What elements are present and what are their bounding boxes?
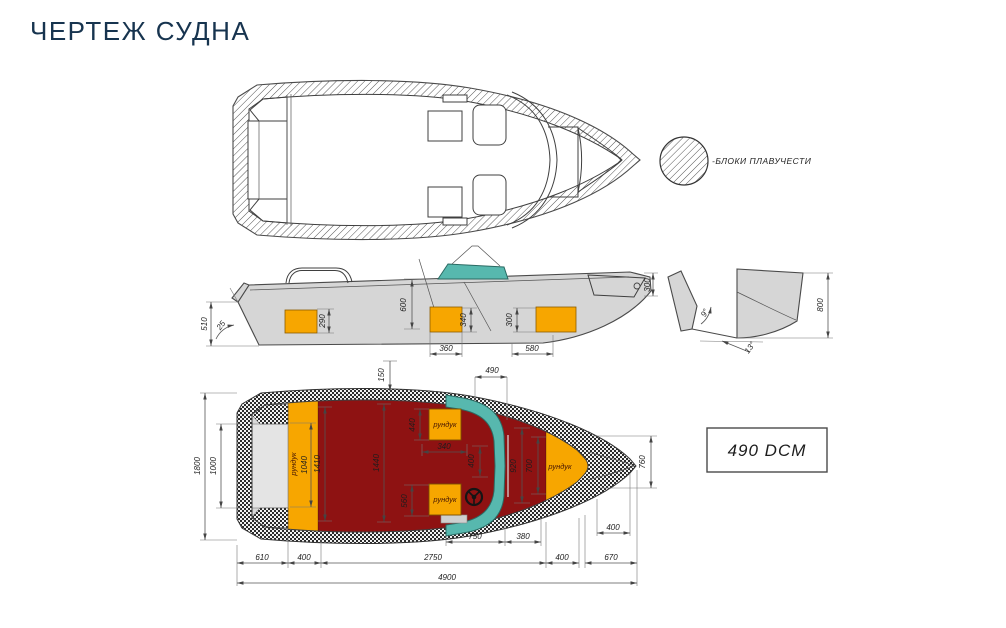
dim-locker-length: 400 [297, 553, 311, 562]
dim-cockpit-depth: 600 [399, 298, 408, 312]
dim-cockpit-w1: 1410 [313, 455, 322, 473]
dim-rubrail: 150 [377, 368, 386, 382]
dim-beam: 1800 [193, 457, 202, 475]
side-locker-2 [430, 307, 462, 332]
blueprint-page: ЧЕРТЕЖ СУДНА [0, 0, 1006, 628]
seat-box-port [428, 111, 462, 141]
dim-section-height: 800 [816, 298, 825, 312]
displacement-box: 490 DCM [707, 428, 827, 472]
buoyancy-block-icon [660, 137, 708, 185]
dim-locker3-width: 580 [525, 344, 539, 353]
dim-seat2-length: 560 [400, 494, 409, 508]
dim-bow-length: 670 [604, 553, 618, 562]
dim-cockpit-length: 2750 [423, 553, 442, 562]
dim-bow-width: 760 [638, 455, 647, 469]
console-pod-starboard [473, 175, 506, 215]
dim-cockpit-w2: 1440 [372, 454, 381, 472]
dim-bow-locker-w: 700 [525, 459, 534, 473]
dim-stern-width: 1000 [209, 457, 218, 475]
gunwale-fitting-port [443, 95, 467, 102]
stern-bench [248, 121, 287, 199]
stern-locker-label: рундук [289, 452, 298, 477]
bow-locker-label: рундук [547, 462, 572, 471]
dim-locker2-width: 360 [439, 344, 453, 353]
dim-seat-width: 340 [437, 442, 451, 451]
dim-windshield-length: 490 [485, 366, 499, 375]
dim-transom-angle: 25 [214, 319, 228, 333]
dim-stern-height: 510 [200, 317, 209, 331]
seat-box-starboard [428, 187, 462, 217]
seat-locker-1-label: рундук [432, 420, 457, 429]
cross-section-view: 9° 13° 800 [668, 269, 833, 355]
dim-stern-length: 610 [255, 553, 269, 562]
plan-view: рундук рундук рундук рундук 150 490 1800… [193, 361, 657, 586]
dim-bow-seg: 400 [555, 553, 569, 562]
bow-eye [634, 283, 640, 289]
ship-drawing: -БЛОКИ ПЛАВУЧЕСТИ 510 25 2 [0, 0, 1006, 628]
top-view [233, 80, 640, 239]
dim-seat-gap: 400 [467, 454, 476, 468]
dim-bow-hatch: 400 [606, 523, 620, 532]
section-side-plate [668, 271, 697, 331]
dim-seat1-length: 440 [408, 418, 417, 432]
side-locker-1 [285, 310, 317, 333]
dim-windshield-width: 380 [516, 532, 530, 541]
displacement-value: 490 DCM [728, 441, 807, 460]
buoyancy-legend: -БЛОКИ ПЛАВУЧЕСТИ [660, 137, 812, 185]
section-hull-half [737, 269, 803, 338]
buoyancy-label: -БЛОКИ ПЛАВУЧЕСТИ [712, 156, 812, 166]
dim-total-length: 4900 [438, 573, 456, 582]
dim-deadrise-mid: 9° [699, 307, 711, 319]
helm-step [441, 515, 467, 523]
dim-locker1-height: 290 [318, 314, 327, 329]
dim-bow-cockpit-w: 920 [509, 459, 518, 473]
dim-stern-locker-length: 1040 [300, 456, 309, 474]
dim-console-length: 750 [468, 532, 482, 541]
dim-bow-height: 300 [643, 278, 652, 292]
console-pod-port [473, 105, 506, 145]
side-view: 510 25 290 600 340 300 360 580 300 [200, 246, 658, 357]
dim-locker3-height: 300 [505, 313, 514, 327]
side-locker-3 [536, 307, 576, 332]
gunwale-fitting-starboard [443, 218, 467, 225]
dim-locker2-height: 340 [459, 313, 468, 327]
windshield-side [438, 264, 508, 279]
windshield-frame [452, 246, 500, 266]
seat-locker-2-label: рундук [432, 495, 457, 504]
